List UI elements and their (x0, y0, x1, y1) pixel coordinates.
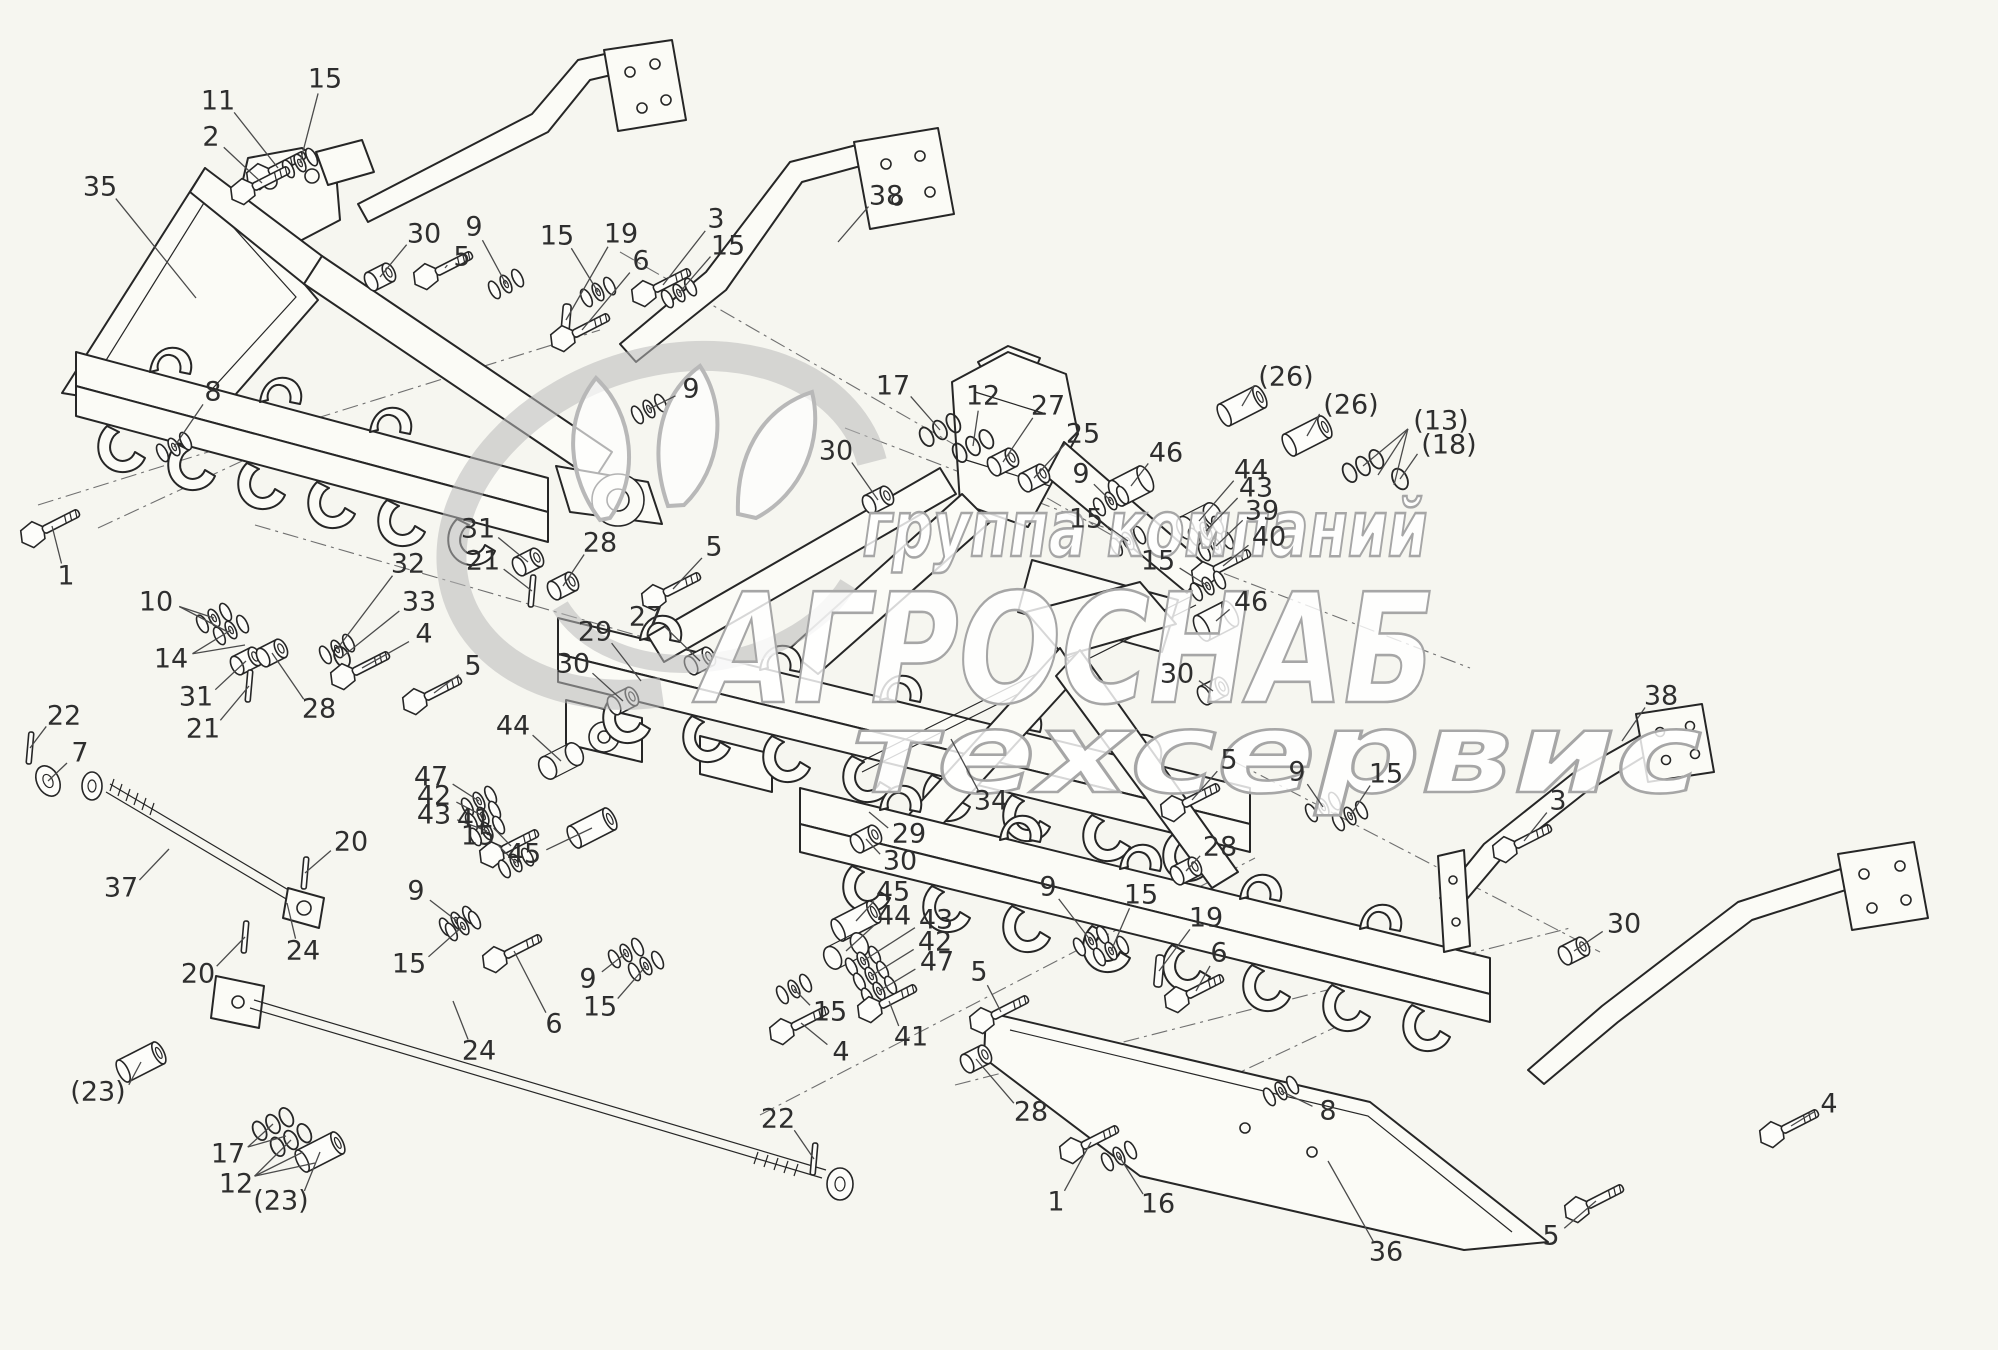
arm-top-38-plate (854, 128, 954, 229)
callout-leader (1363, 429, 1408, 466)
callout-label: 27 (629, 602, 663, 633)
callout-label: 43 (417, 800, 451, 831)
callout-label: 9 (579, 964, 596, 995)
small-bracket (316, 140, 374, 185)
callout-label: 12 (966, 381, 1000, 412)
callout-label: 24 (462, 1036, 496, 1067)
callout-label: 31 (461, 514, 495, 545)
callout-label: 30 (407, 219, 441, 250)
hardware-bolt (1755, 1101, 1823, 1151)
callout-label: 15 (540, 221, 574, 252)
hardware-bolt (478, 926, 546, 976)
arm-bottom-right-plate (1838, 842, 1928, 930)
arm-top-left-plate (604, 40, 686, 131)
callout-label: 35 (83, 172, 117, 203)
callout-label: (26) (1323, 390, 1378, 421)
callout-label: 4 (1820, 1089, 1837, 1120)
callout-label: 9 (465, 212, 482, 243)
callout-label: 15 (461, 821, 495, 852)
callout-leader (342, 611, 399, 657)
callout-label: 9 (1288, 757, 1305, 788)
hardware-bolt (398, 668, 466, 718)
callout-label: 14 (154, 644, 188, 675)
callout-label: 10 (139, 587, 173, 618)
hardware-bolt (16, 501, 84, 551)
callout-leader (794, 1130, 814, 1159)
callout-label: 33 (402, 587, 436, 618)
callout-label: 2 (202, 122, 219, 153)
callout-leader (911, 396, 940, 430)
callout-label: 4 (415, 619, 432, 650)
end-nut (827, 1168, 853, 1200)
callout-leader (220, 686, 249, 720)
callout-leader (566, 247, 608, 320)
callout-leader (863, 928, 915, 961)
bracket (700, 736, 772, 792)
callout-label: 15 (392, 949, 426, 980)
callout-label: 17 (876, 371, 910, 402)
callout-label: 1 (1047, 1187, 1064, 1218)
callout-label: 44 (877, 901, 911, 932)
callout-label: (18) (1421, 430, 1476, 461)
callout-label: 22 (761, 1104, 795, 1135)
callout-leader (255, 1140, 291, 1176)
callout-label: 28 (1014, 1097, 1048, 1128)
callout-leader (52, 526, 61, 563)
callout-label: 30 (883, 846, 917, 877)
callout-label: 3 (1549, 786, 1566, 817)
callout-label: 32 (391, 549, 425, 580)
arm-top-38 (620, 138, 890, 362)
callout-label: 21 (466, 546, 500, 577)
callout-leader (514, 951, 546, 1013)
callout-label: 17 (211, 1139, 245, 1170)
callout-label: 4 (832, 1037, 849, 1068)
callout-label: 28 (302, 694, 336, 725)
callout-label: 29 (578, 617, 612, 648)
callout-label: 28 (1203, 832, 1237, 863)
callout-label: (23) (70, 1077, 125, 1108)
callout-label: 46 (1149, 438, 1183, 469)
callout-leader (987, 985, 1001, 1012)
callout-label: 38 (1644, 681, 1678, 712)
callout-label: 27 (1031, 391, 1065, 422)
callout-label: 22 (47, 701, 81, 732)
washer-7 (82, 772, 102, 800)
callout-leader (362, 642, 409, 668)
callout-label: 20 (181, 959, 215, 990)
callout-leader (482, 240, 506, 284)
callout-label: 8 (204, 377, 221, 408)
callout-label: 5 (1220, 745, 1237, 776)
callout-leader (453, 1001, 468, 1040)
callout-label: 30 (556, 649, 590, 680)
callout-label: 25 (1066, 419, 1100, 450)
callout-label: 21 (186, 714, 220, 745)
callout-label: 15 (1069, 504, 1103, 535)
callout-label: 9 (1039, 872, 1056, 903)
callout-leader (139, 849, 169, 880)
callout-label: 9 (682, 374, 699, 405)
side-plate-36 (984, 1012, 1548, 1250)
callout-label: 15 (813, 997, 847, 1028)
callout-label: 6 (545, 1009, 562, 1040)
callout-label: 41 (894, 1022, 928, 1053)
arm-bottom-right (1528, 868, 1852, 1084)
callout-label: 15 (308, 64, 342, 95)
callout-label: 5 (453, 242, 470, 273)
callout-label: 15 (1124, 880, 1158, 911)
callout-label: 20 (334, 827, 368, 858)
callout-label: 15 (1369, 759, 1403, 790)
callout-label: 6 (632, 246, 649, 277)
callout-label: 15 (1141, 546, 1175, 577)
callout-label: 30 (819, 436, 853, 467)
exploded-parts-diagram: группа компаний АГРОСНАБ техсервис 11152… (0, 0, 1998, 1350)
callout-label: 16 (1141, 1189, 1175, 1220)
callout-label: 24 (286, 936, 320, 967)
callout-label: 38 (869, 181, 903, 212)
logo-leaf (738, 392, 815, 518)
callout-label: 30 (1607, 909, 1641, 940)
callout-label: 15 (583, 992, 617, 1023)
callout-label: 5 (970, 957, 987, 988)
callout-label: 5 (705, 532, 722, 563)
callout-label: 36 (1369, 1237, 1403, 1268)
callout-label: 1 (57, 561, 74, 592)
callout-label: 7 (71, 738, 88, 769)
callout-label: 45 (507, 839, 541, 870)
hardware-bolt (1560, 1176, 1628, 1226)
callout-label: 8 (1319, 1096, 1336, 1127)
callout-leader (1400, 454, 1417, 479)
callout-leader (1378, 429, 1408, 475)
callout-label: 40 (1252, 522, 1286, 553)
callout-leader (838, 207, 868, 242)
callout-label: 9 (1072, 459, 1089, 490)
callout-label: 5 (464, 651, 481, 682)
callout-label: 47 (920, 947, 954, 978)
callout-label: 15 (711, 231, 745, 262)
callout-label: 19 (1189, 903, 1223, 934)
callout-label: 37 (104, 873, 138, 904)
callout-label: 30 (1160, 659, 1194, 690)
callout-label: 12 (219, 1169, 253, 1200)
hardware-bolt (546, 305, 614, 355)
callout-label: 31 (179, 682, 213, 713)
callout-label: 28 (583, 528, 617, 559)
callout-label: 6 (1210, 938, 1227, 969)
callout-label: 5 (1542, 1221, 1559, 1252)
callout-label: 11 (201, 86, 235, 117)
arm-right-38-hanger (1438, 850, 1470, 952)
callout-label: (26) (1258, 362, 1313, 393)
callout-label: 46 (1234, 587, 1268, 618)
parts-diagram-page: группа компаний АГРОСНАБ техсервис 11152… (0, 0, 1998, 1350)
callout-label: 34 (974, 786, 1008, 817)
callout-label: (23) (253, 1186, 308, 1217)
callout-leader (272, 653, 304, 699)
callout-label: 9 (407, 876, 424, 907)
callout-label: 44 (496, 711, 530, 742)
